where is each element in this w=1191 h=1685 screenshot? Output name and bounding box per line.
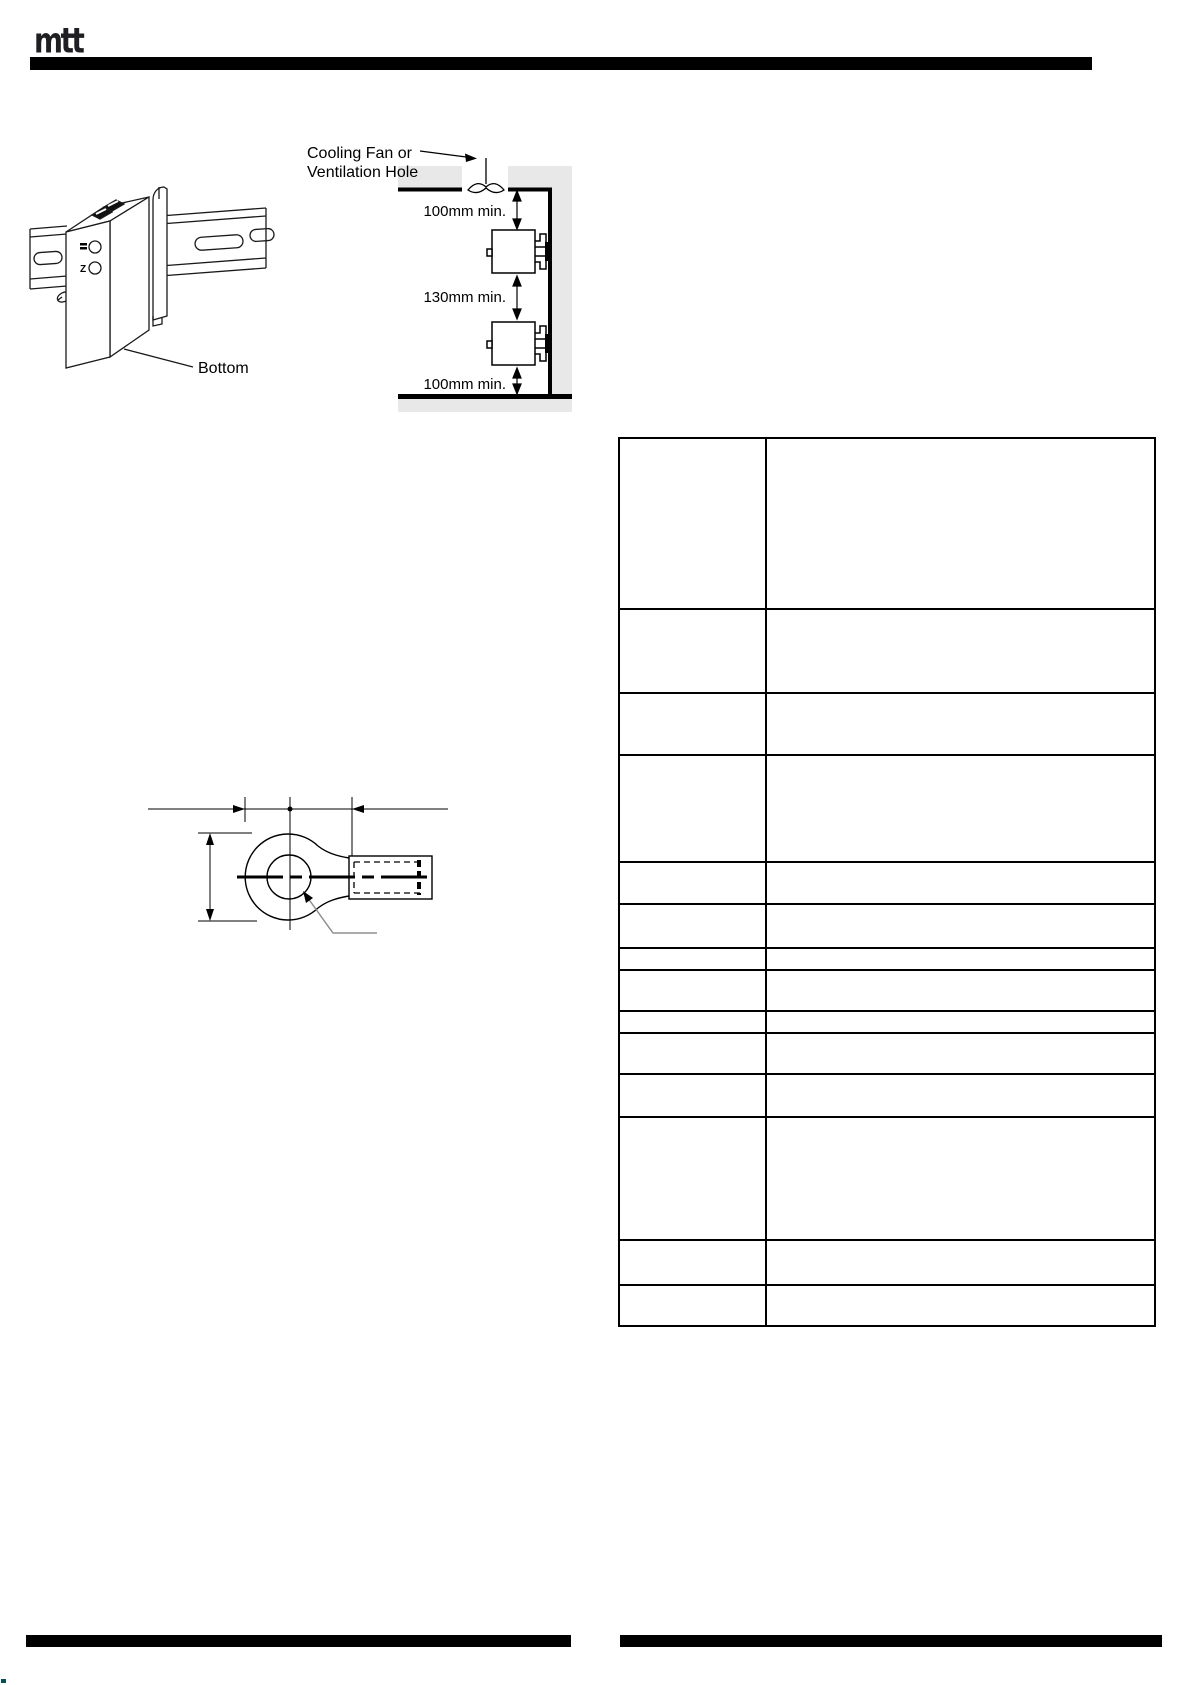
- bottom-rule-right: [620, 1635, 1162, 1647]
- table-cell-label: [620, 1012, 767, 1032]
- spec-table: [618, 437, 1156, 1327]
- table-row: [620, 1284, 1154, 1325]
- device-module: [66, 197, 149, 368]
- clearance-figure: Cooling Fan or Ventilation Hole 100mm mi…: [278, 118, 578, 416]
- document-page: mtt: [0, 0, 1191, 1685]
- table-cell-value: [767, 439, 1154, 608]
- din-rail-right: [160, 208, 274, 276]
- ring-terminal-figure: [130, 770, 460, 945]
- table-cell-label: [620, 863, 767, 903]
- table-cell-value: [767, 949, 1154, 969]
- table-cell-value: [767, 1012, 1154, 1032]
- table-row: [620, 861, 1154, 903]
- bottom-rule-left: [26, 1635, 571, 1647]
- dimension-line-horizontal: [148, 797, 448, 930]
- dim-label-bottom: 100mm min.: [423, 376, 506, 393]
- table-cell-value: [767, 905, 1154, 947]
- dimension-dot: [288, 807, 293, 812]
- table-cell-label: [620, 1241, 767, 1284]
- table-cell-label: [620, 1075, 767, 1116]
- table-cell-label: [620, 1286, 767, 1325]
- bottom-label: Bottom: [198, 360, 249, 377]
- top-rule: [30, 57, 1092, 70]
- table-cell-value: [767, 1118, 1154, 1239]
- din-rail-figure: Z Bottom: [28, 168, 278, 383]
- table-row: [620, 1239, 1154, 1284]
- din-rail-left: [30, 226, 67, 289]
- table-cell-label: [620, 1118, 767, 1239]
- mtt-logo: mtt: [34, 24, 82, 59]
- table-cell-value: [767, 863, 1154, 903]
- table-row: [620, 1116, 1154, 1239]
- mounting-clip: [153, 187, 167, 326]
- table-cell-value: [767, 1241, 1154, 1284]
- table-cell-value: [767, 694, 1154, 754]
- table-cell-label: [620, 610, 767, 692]
- table-cell-label: [620, 949, 767, 969]
- table-row: [620, 969, 1154, 1010]
- led-label-z: Z: [80, 264, 86, 275]
- scan-artifact: [1, 1679, 6, 1683]
- table-cell-value: [767, 1286, 1154, 1325]
- table-cell-value: [767, 1075, 1154, 1116]
- table-cell-label: [620, 1034, 767, 1073]
- table-row: [620, 754, 1154, 861]
- table-cell-value: [767, 756, 1154, 861]
- table-cell-value: [767, 610, 1154, 692]
- fan-callout-line2: Ventilation Hole: [307, 164, 418, 181]
- table-row: [620, 439, 1154, 608]
- leader-line: [124, 349, 193, 367]
- table-cell-label: [620, 694, 767, 754]
- table-cell-label: [620, 971, 767, 1010]
- table-cell-label: [620, 905, 767, 947]
- dim-label-middle: 130mm min.: [423, 289, 506, 306]
- arrowhead-up: [206, 833, 214, 845]
- table-row: [620, 947, 1154, 969]
- fan-icon: [468, 158, 504, 193]
- table-row: [620, 608, 1154, 692]
- table-row: [620, 903, 1154, 947]
- arrowhead-down: [206, 909, 214, 921]
- table-cell-label: [620, 756, 767, 861]
- table-row: [620, 1032, 1154, 1073]
- table-row: [620, 1010, 1154, 1032]
- callout-arrow: [420, 151, 477, 162]
- dim-label-top: 100mm min.: [423, 203, 506, 220]
- fan-callout-line1: Cooling Fan or: [307, 145, 413, 162]
- table-cell-value: [767, 971, 1154, 1010]
- table-cell-label: [620, 439, 767, 608]
- table-cell-value: [767, 1034, 1154, 1073]
- table-row: [620, 1073, 1154, 1116]
- arrowhead-right: [233, 805, 245, 813]
- arrowhead-left: [352, 805, 364, 813]
- table-row: [620, 692, 1154, 754]
